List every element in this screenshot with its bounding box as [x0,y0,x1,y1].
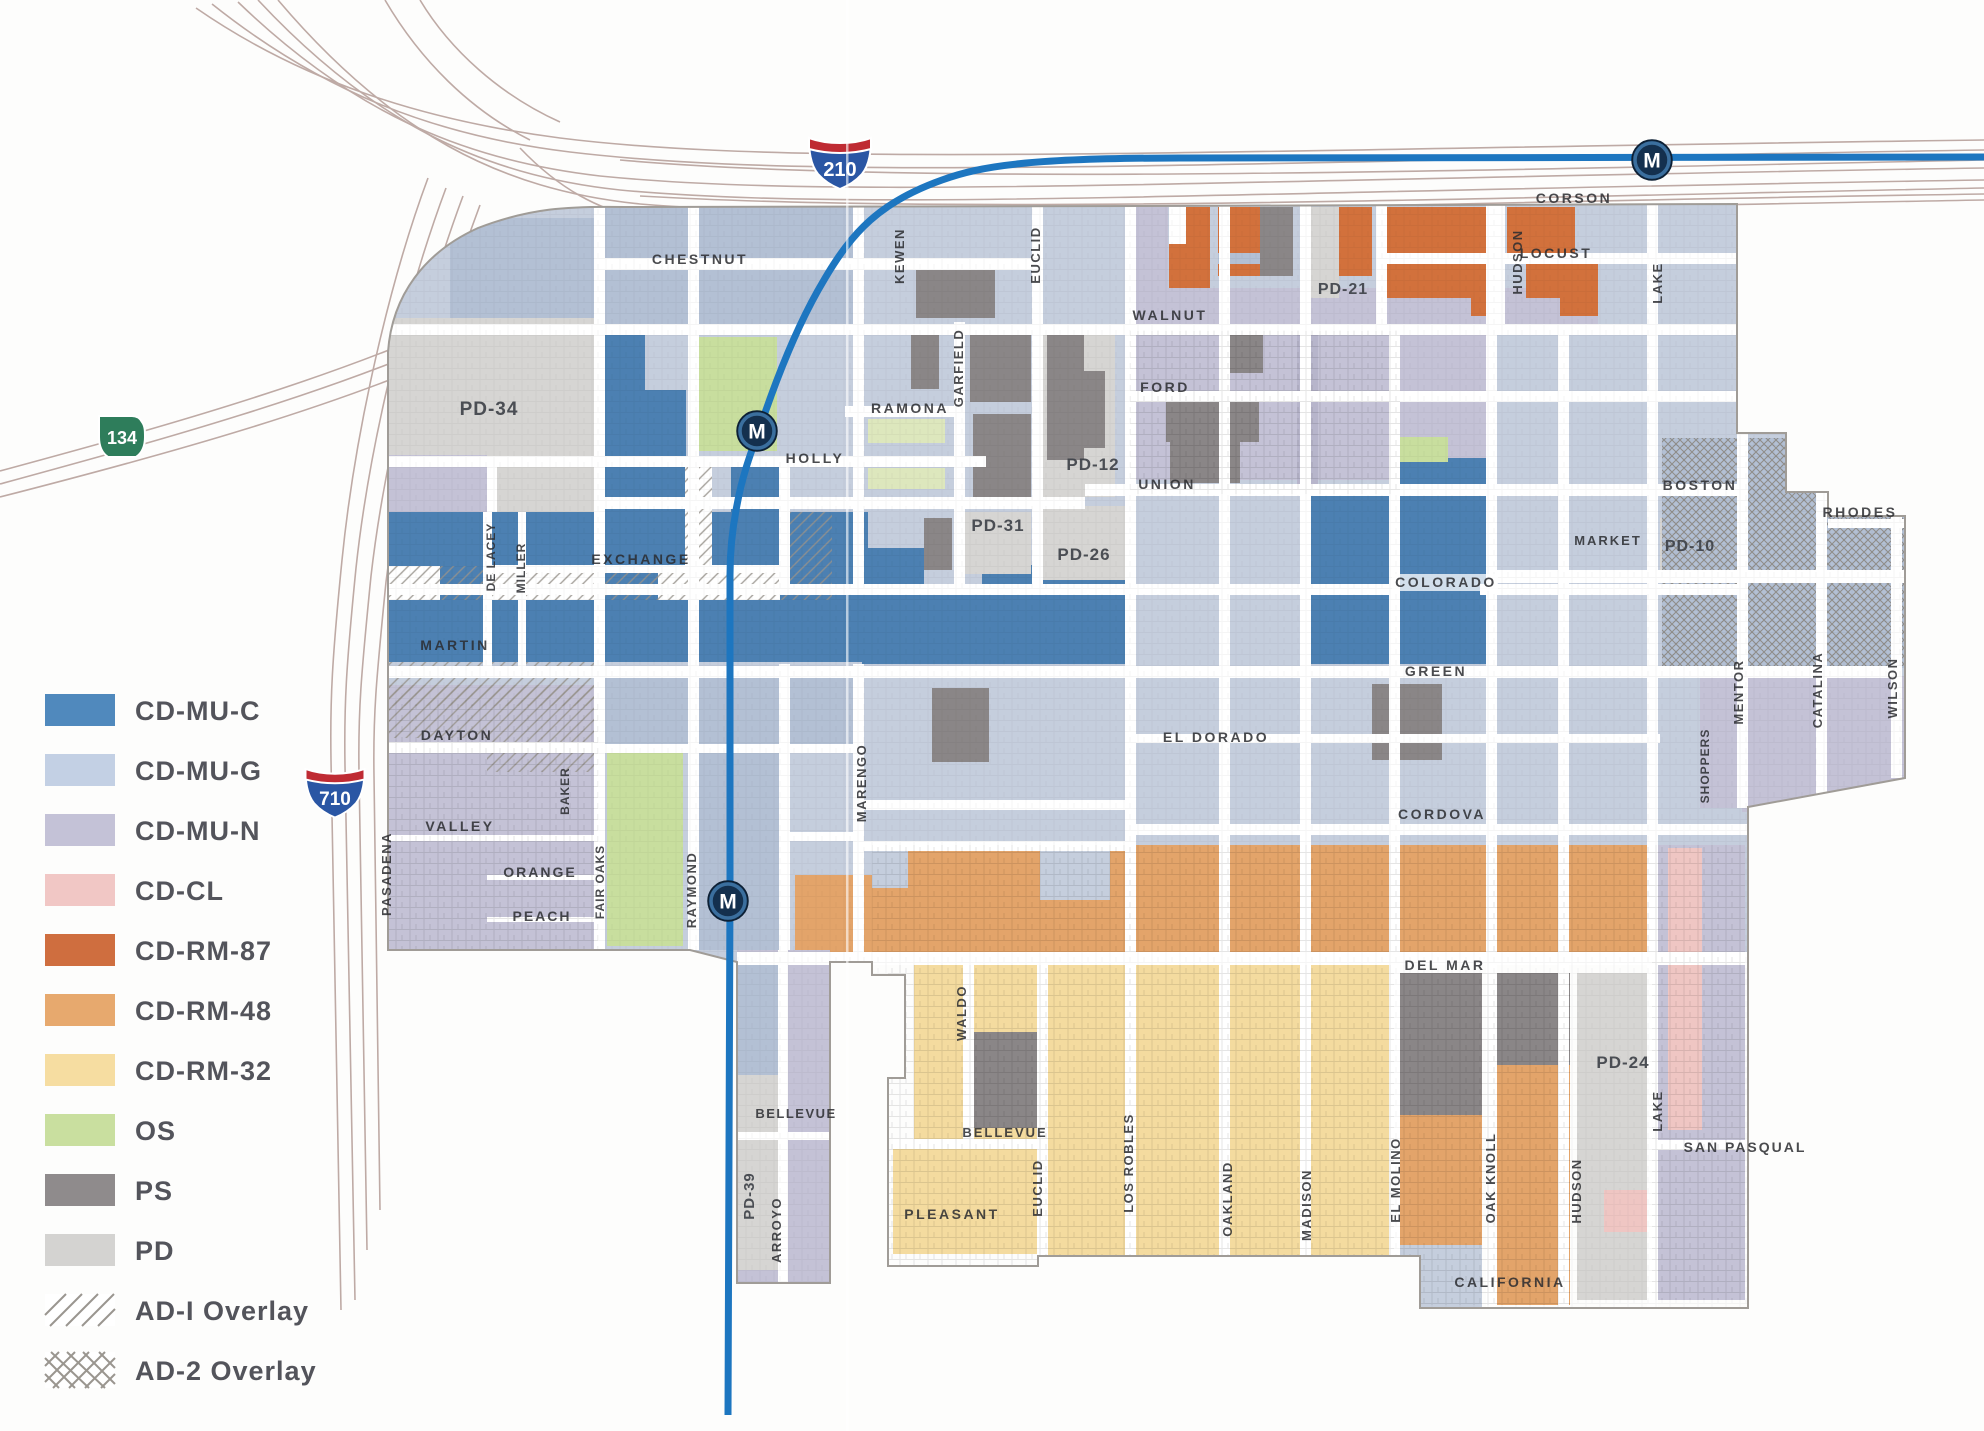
svg-text:ORANGE: ORANGE [503,864,576,880]
svg-text:PD-24: PD-24 [1596,1053,1649,1072]
svg-text:PD: PD [135,1236,175,1266]
svg-text:MARENGO: MARENGO [854,744,869,822]
svg-text:HUDSON: HUDSON [1569,1158,1584,1223]
svg-text:EUCLID: EUCLID [1028,226,1043,283]
svg-text:PD-26: PD-26 [1057,545,1110,564]
svg-text:KEWEN: KEWEN [892,228,907,284]
svg-text:MARTIN: MARTIN [420,637,489,653]
svg-text:ARROYO: ARROYO [769,1197,784,1263]
svg-text:OS: OS [135,1116,176,1146]
svg-text:PD-21: PD-21 [1318,281,1368,298]
svg-text:M: M [1643,150,1661,173]
svg-text:DAYTON: DAYTON [421,727,494,743]
svg-text:CD-RM-32: CD-RM-32 [135,1056,272,1086]
svg-text:CD-MU-C: CD-MU-C [135,696,260,726]
svg-text:LOCUST: LOCUST [1520,245,1593,261]
svg-text:FORD: FORD [1140,379,1190,395]
svg-text:CD-MU-N: CD-MU-N [135,816,260,846]
svg-text:MILLER: MILLER [514,543,528,594]
svg-text:HOLLY: HOLLY [786,450,845,466]
svg-text:CORSON: CORSON [1536,190,1612,206]
svg-text:MADISON: MADISON [1299,1169,1314,1241]
svg-text:PASADENA: PASADENA [379,832,394,916]
svg-text:LAKE: LAKE [1650,262,1665,303]
svg-text:EL DORADO: EL DORADO [1163,729,1269,745]
svg-text:GARFIELD: GARFIELD [951,329,966,407]
svg-text:CHESTNUT: CHESTNUT [652,251,748,267]
svg-text:EXCHANGE: EXCHANGE [591,551,690,567]
svg-text:HUDSON: HUDSON [1510,229,1525,294]
svg-text:FAIR OAKS: FAIR OAKS [593,845,607,919]
svg-text:BELLEVUE: BELLEVUE [962,1125,1047,1140]
svg-text:PD-34: PD-34 [460,399,519,420]
svg-text:CD-CL: CD-CL [135,876,224,906]
svg-text:CATALINA: CATALINA [1810,652,1825,729]
svg-text:COLORADO: COLORADO [1395,574,1497,590]
svg-text:134: 134 [107,428,137,448]
svg-text:710: 710 [319,789,351,810]
svg-text:GREEN: GREEN [1405,663,1467,679]
svg-text:PD-31: PD-31 [971,516,1024,535]
svg-text:CALIFORNIA: CALIFORNIA [1454,1274,1565,1290]
svg-text:PD-39: PD-39 [741,1172,758,1220]
svg-text:RHODES: RHODES [1823,504,1898,520]
svg-text:MENTOR: MENTOR [1731,659,1746,724]
svg-text:M: M [748,421,766,444]
svg-text:AD-I Overlay: AD-I Overlay [135,1296,309,1326]
svg-text:LOS ROBLES: LOS ROBLES [1121,1113,1136,1213]
svg-text:LAKE: LAKE [1650,1090,1665,1131]
svg-text:SAN PASQUAL: SAN PASQUAL [1684,1139,1807,1155]
svg-text:CD-RM-48: CD-RM-48 [135,996,272,1026]
svg-text:OAK KNOLL: OAK KNOLL [1483,1133,1498,1224]
svg-text:SHOPPERS: SHOPPERS [1698,729,1712,804]
svg-text:PS: PS [135,1176,173,1206]
svg-text:DE LACEY: DE LACEY [484,523,498,592]
svg-text:UNION: UNION [1138,476,1196,492]
svg-text:BELLEVUE: BELLEVUE [755,1106,836,1121]
svg-text:VALLEY: VALLEY [425,818,494,834]
svg-text:210: 210 [823,159,856,181]
svg-text:EUCLID: EUCLID [1030,1159,1045,1216]
svg-text:DEL MAR: DEL MAR [1404,957,1485,973]
svg-text:AD-2 Overlay: AD-2 Overlay [135,1356,317,1386]
svg-text:PD-10: PD-10 [1665,538,1715,555]
svg-text:CD-RM-87: CD-RM-87 [135,936,272,966]
svg-text:MARKET: MARKET [1574,533,1642,548]
svg-text:RAMONA: RAMONA [871,400,949,416]
svg-text:EL MOLINO: EL MOLINO [1388,1137,1403,1222]
svg-text:WILSON: WILSON [1885,658,1900,719]
svg-text:PEACH: PEACH [512,908,571,924]
svg-text:PD-12: PD-12 [1066,455,1119,474]
svg-text:RAYMOND: RAYMOND [684,852,699,928]
svg-text:CD-MU-G: CD-MU-G [135,756,262,786]
svg-text:M: M [719,891,737,914]
svg-text:PLEASANT: PLEASANT [904,1206,999,1222]
svg-text:WALNUT: WALNUT [1133,307,1208,323]
svg-text:CORDOVA: CORDOVA [1398,806,1486,822]
svg-text:OAKLAND: OAKLAND [1220,1161,1235,1237]
svg-text:BOSTON: BOSTON [1663,477,1738,493]
svg-text:BAKER: BAKER [558,767,572,815]
svg-text:WALDO: WALDO [954,985,969,1041]
